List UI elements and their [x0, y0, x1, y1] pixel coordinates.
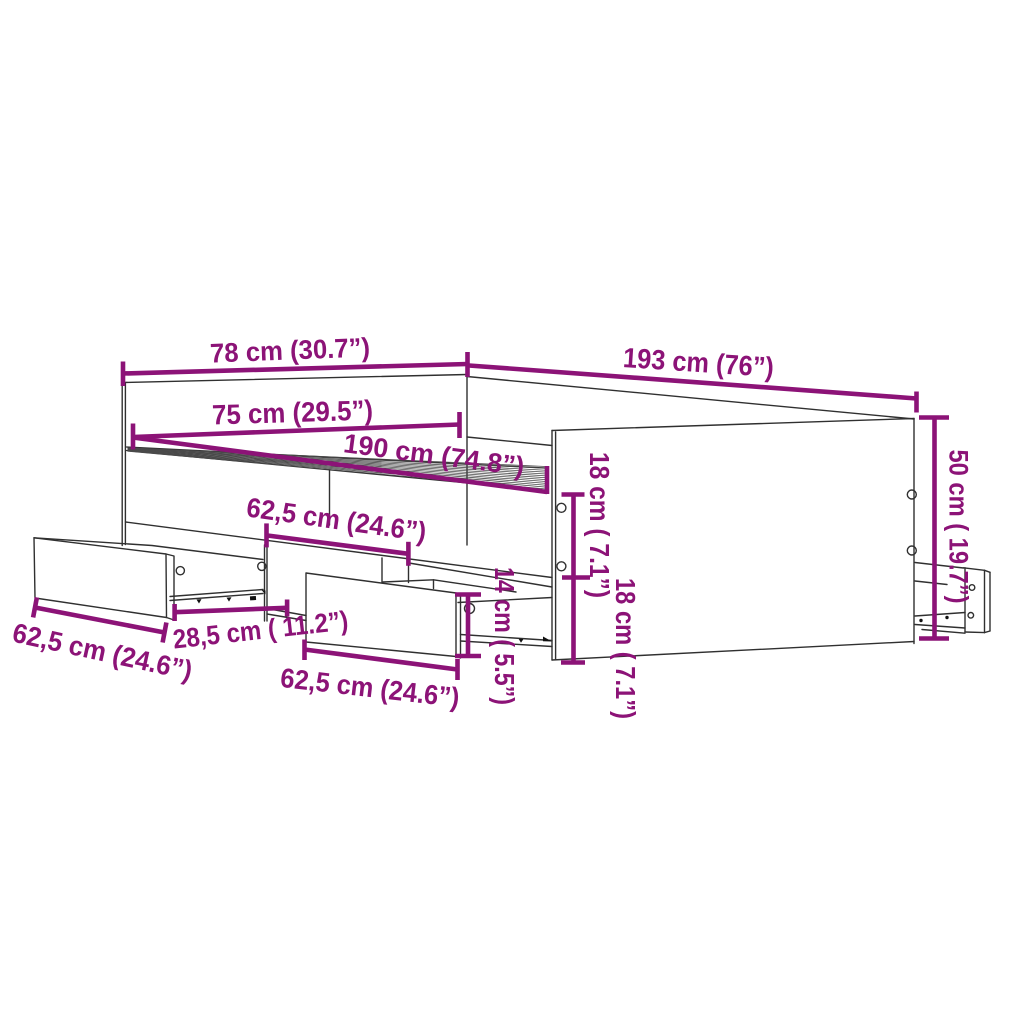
svg-text:14 cm ( 5.5”): 14 cm ( 5.5”)	[489, 567, 520, 705]
svg-text:18 cm ( 7.1”): 18 cm ( 7.1”)	[584, 452, 615, 598]
svg-text:75 cm (29.5”): 75 cm (29.5”)	[212, 394, 374, 430]
svg-text:18 cm ( 7.1”): 18 cm ( 7.1”)	[610, 578, 641, 719]
svg-text:50 cm ( 19.7”): 50 cm ( 19.7”)	[944, 450, 974, 604]
svg-text:78 cm (30.7”): 78 cm (30.7”)	[209, 332, 370, 368]
